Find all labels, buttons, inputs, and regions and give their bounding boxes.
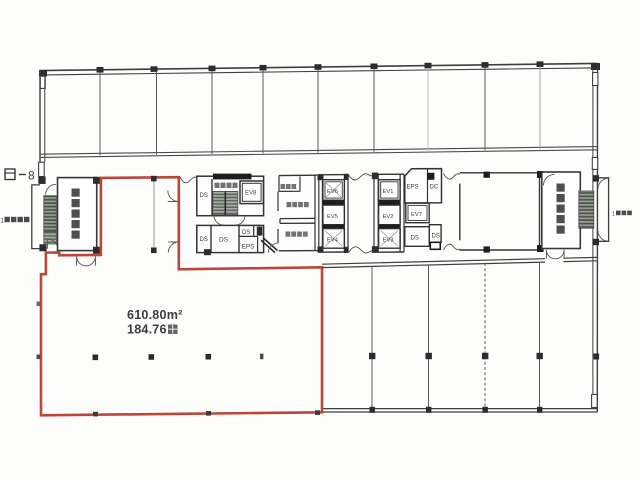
svg-text:EV2: EV2: [383, 214, 394, 220]
svg-text:EV3: EV3: [383, 237, 394, 243]
svg-text:EV5: EV5: [327, 214, 338, 220]
svg-text:EV4: EV4: [327, 237, 339, 243]
svg-text:DS: DS: [411, 235, 419, 241]
svg-text:EV8: EV8: [245, 191, 257, 197]
svg-text:EV1: EV1: [383, 189, 394, 195]
svg-text:DS: DS: [242, 230, 250, 236]
svg-text:EV6: EV6: [327, 189, 338, 195]
svg-text:DS: DS: [219, 237, 229, 244]
svg-text:8: 8: [28, 169, 35, 183]
svg-text:DS: DS: [200, 237, 208, 243]
svg-text:EV7: EV7: [411, 212, 422, 218]
svg-text:EPS: EPS: [407, 185, 419, 191]
svg-text:610.80m²: 610.80m²: [127, 308, 183, 322]
svg-text:1: 1: [612, 212, 615, 218]
svg-text:DS: DS: [432, 233, 440, 239]
svg-text:DC: DC: [430, 185, 439, 191]
svg-text:184.76: 184.76: [127, 322, 167, 336]
svg-text:EPS: EPS: [242, 244, 256, 251]
svg-text:1: 1: [1, 219, 5, 225]
svg-text:DS: DS: [200, 193, 208, 199]
